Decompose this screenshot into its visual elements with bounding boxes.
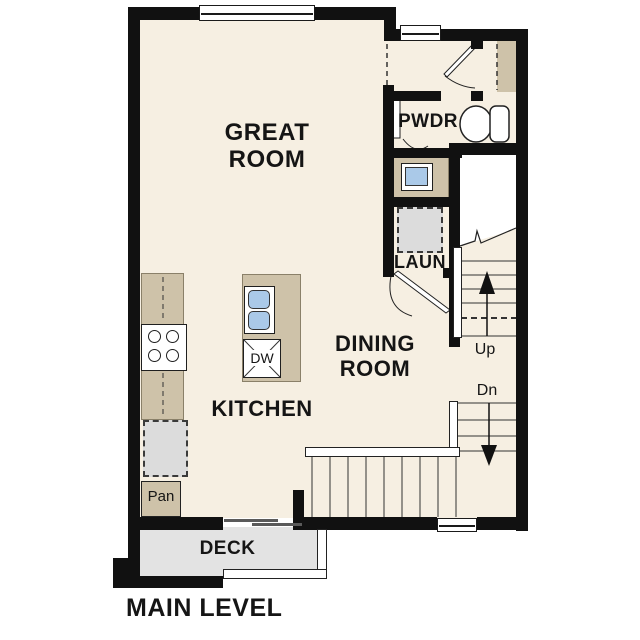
window-pane-line <box>201 13 313 15</box>
window <box>199 5 315 21</box>
window <box>437 518 477 532</box>
wall <box>449 143 516 155</box>
stairs-down-treads <box>458 403 516 451</box>
wall <box>128 517 223 530</box>
wall <box>471 91 483 101</box>
stair-railing <box>305 447 460 457</box>
stairs-down-label: Dn <box>470 382 504 400</box>
floor-plan: GREAT ROOM PWDR LAUN DINING ROOM KITCHEN… <box>0 0 640 640</box>
sliding-door-panel <box>224 519 278 522</box>
deck-label: DECK <box>190 538 265 559</box>
dining-room-label: DINING ROOM <box>325 332 425 381</box>
stairs-up-label: Up <box>468 341 502 359</box>
dishwasher-label-text: DW <box>249 350 274 366</box>
window-pane-line <box>439 525 475 527</box>
window <box>400 25 441 41</box>
wall <box>128 7 140 558</box>
toilet-tank <box>490 106 509 142</box>
laundry-label: LAUN <box>392 252 448 272</box>
wall <box>477 517 528 530</box>
stair-railing <box>453 247 462 338</box>
pantry-label: Pan <box>141 489 181 506</box>
stairs-up-treads <box>461 261 516 336</box>
deck-railing <box>223 569 327 579</box>
entry-door-swing-arc <box>445 76 475 88</box>
laundry-door-leaf <box>394 271 450 313</box>
dishwasher-label: DW <box>243 351 281 367</box>
great-room-label: GREAT ROOM <box>212 120 322 174</box>
sliding-door-panel <box>252 523 302 526</box>
window-pane-line <box>402 33 439 35</box>
door-hinge-stub <box>471 41 483 49</box>
stairs-main-treads <box>312 457 456 517</box>
toilet-bowl <box>460 106 492 142</box>
wall <box>383 85 394 277</box>
down-arrow-icon <box>481 445 497 466</box>
plan-title: MAIN LEVEL <box>126 594 316 622</box>
wall <box>383 91 441 101</box>
wall <box>516 29 528 531</box>
kitchen-label: KITCHEN <box>206 397 318 422</box>
powder-room-label: PWDR <box>396 111 460 132</box>
up-arrow-icon <box>479 271 495 294</box>
wall <box>113 576 223 588</box>
